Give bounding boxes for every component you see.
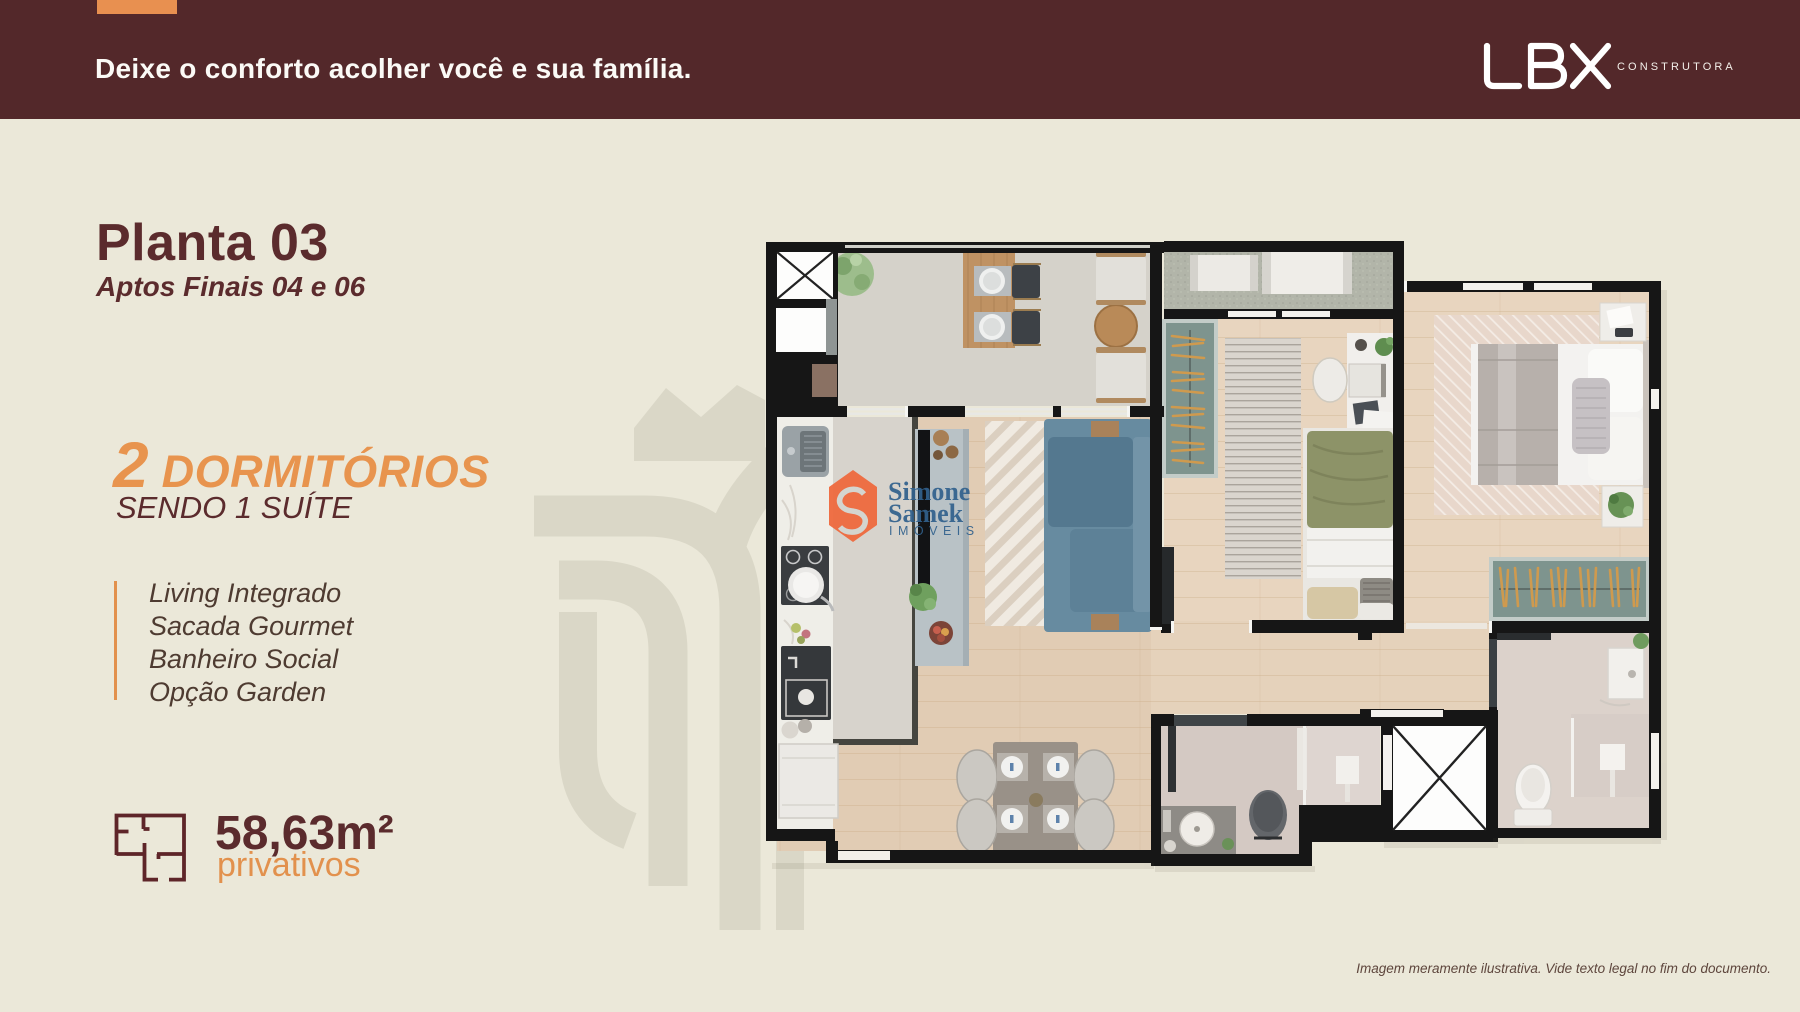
svg-text:IMÓVEIS: IMÓVEIS [889, 523, 980, 538]
